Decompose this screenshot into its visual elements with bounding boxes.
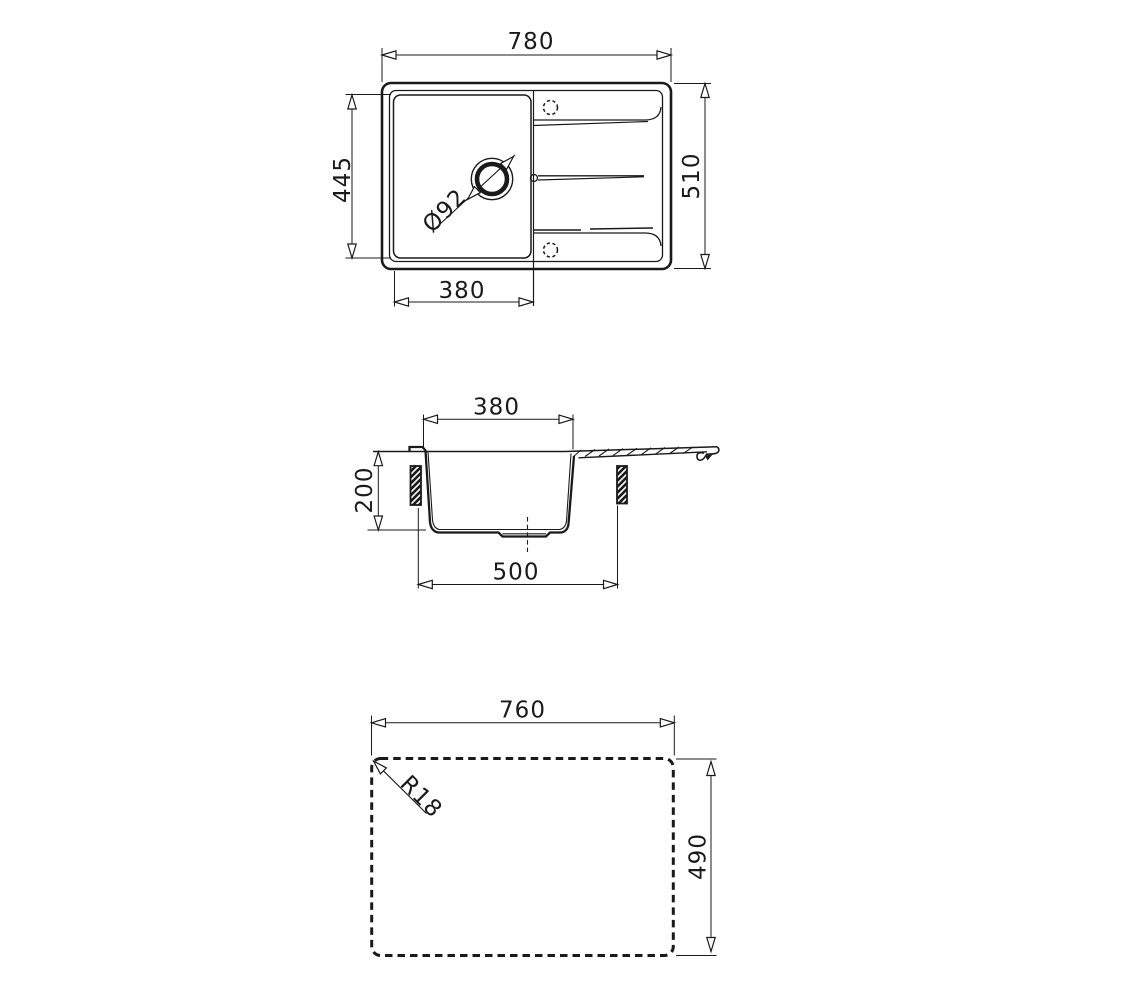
drawing-canvas: Ø92 780 510 445 [0, 0, 1125, 1000]
dim-cutout-width-label: 760 [499, 698, 546, 724]
dim-cutout-depth: 490 [676, 759, 717, 956]
dim-bowl-width: 380 [395, 271, 534, 307]
drainboard-groove-top [534, 122, 649, 126]
dim-overall-depth-label: 510 [679, 153, 705, 200]
dim-rim-width-label: 380 [473, 395, 520, 421]
dim-drain-diameter-label: Ø92 [418, 184, 472, 238]
tap-hole-bottom [544, 243, 558, 257]
dim-corner-radius: R18 [371, 758, 448, 823]
dim-cutout-depth-label: 490 [686, 833, 712, 880]
cutout-view: 760 490 R18 [371, 698, 717, 956]
drainboard-section-underside [579, 452, 708, 458]
section-view: 380 200 500 [352, 395, 719, 589]
drainboard-edge-curl-fill [705, 455, 713, 461]
dim-rim-width: 380 [424, 395, 574, 450]
bowl-outline [394, 95, 532, 258]
drainboard-groove-middle-b [538, 177, 644, 180]
bowl-section-inner-profile [428, 452, 571, 530]
tap-hole-top [544, 101, 558, 115]
dim-base-width: 500 [418, 506, 617, 589]
dim-bowl-length-label: 445 [330, 156, 356, 203]
fixing-clip-right [617, 466, 627, 504]
dim-overall-width: 780 [382, 29, 671, 82]
dim-overall-depth: 510 [674, 84, 711, 269]
dim-overall-width-label: 780 [508, 29, 555, 55]
dim-bowl-width-label: 380 [439, 278, 486, 304]
drain-ring [477, 164, 507, 194]
dim-bowl-depth-label: 200 [352, 467, 378, 514]
dim-cutout-width: 760 [372, 698, 675, 756]
fixing-clip-left [411, 466, 422, 505]
dim-corner-radius-label: R18 [395, 771, 448, 824]
bowl-section-outer-profile [410, 447, 575, 537]
top-view: Ø92 780 510 445 [330, 29, 711, 307]
sink-technical-drawing: Ø92 780 510 445 [0, 0, 1125, 1000]
drainboard-groove-bottom-right [590, 228, 653, 229]
dim-base-width-label: 500 [493, 560, 540, 586]
